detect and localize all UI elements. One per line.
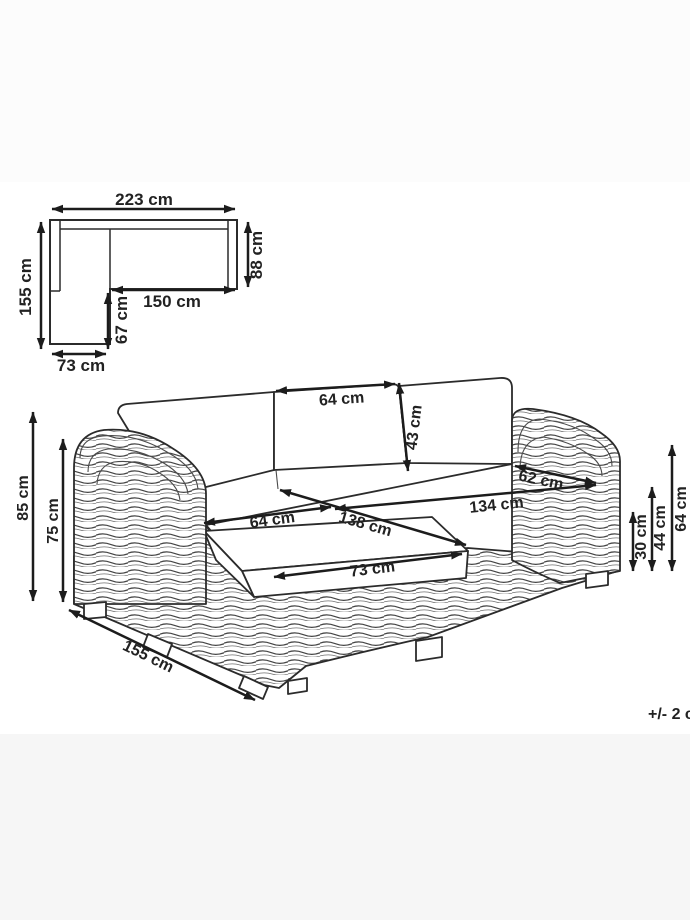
dim-label-back-cushion-width: 64 cm — [318, 389, 364, 409]
background-band-top — [0, 0, 690, 182]
dim-label-chaise-inner-depth: 67 cm — [112, 296, 131, 344]
dim-label-overall-height: 85 cm — [15, 475, 32, 520]
right-armrest — [512, 409, 620, 583]
sofa-foot — [416, 637, 442, 661]
sofa-foot — [288, 678, 307, 694]
dim-label-right-depth: 88 cm — [247, 231, 266, 279]
dim-label-total-width: 223 cm — [115, 190, 173, 209]
sofa-foot — [586, 571, 608, 588]
dim-label-total-depth: 155 cm — [16, 258, 35, 316]
dim-label-seat-height: 30 cm — [633, 514, 650, 559]
dim-label-inner-width: 150 cm — [143, 292, 201, 311]
dim-label-chaise-width: 73 cm — [57, 356, 105, 375]
background-band-bottom — [0, 734, 690, 920]
product-dimension-diagram: 223 cm 155 cm 88 cm 150 cm 67 cm 73 cm — [0, 0, 690, 920]
diagram-svg: 223 cm 155 cm 88 cm 150 cm 67 cm 73 cm — [0, 0, 690, 920]
tolerance-note: +/- 2 c — [648, 706, 690, 723]
dim-label-armrest-height-right: 64 cm — [673, 486, 690, 531]
dim-label-cushion-height: 44 cm — [652, 505, 669, 550]
sofa-foot — [84, 602, 106, 619]
dim-label-armrest-height-left: 75 cm — [45, 498, 62, 543]
